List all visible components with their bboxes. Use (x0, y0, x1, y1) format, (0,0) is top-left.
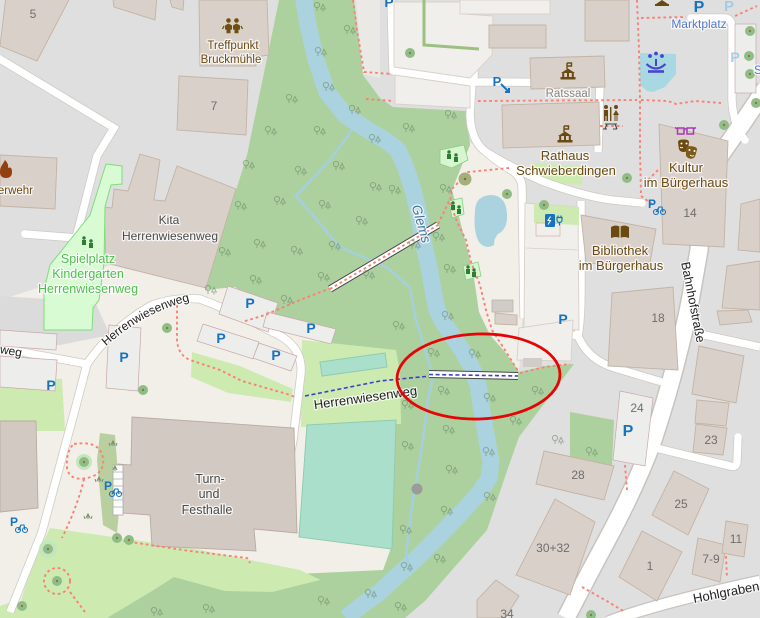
svg-text:Turn-: Turn- (195, 472, 224, 486)
svg-text:P: P (724, 0, 734, 15)
svg-text:30+32: 30+32 (536, 541, 570, 555)
svg-text:Herrenwiesenweg: Herrenwiesenweg (122, 229, 218, 243)
svg-text:Kindergarten: Kindergarten (52, 267, 124, 281)
svg-text:P: P (216, 330, 225, 346)
svg-text:P: P (648, 197, 656, 211)
svg-text:im Bürgerhaus: im Bürgerhaus (579, 258, 664, 273)
svg-text:P: P (694, 0, 705, 16)
svg-text:23: 23 (704, 433, 718, 447)
svg-text:P: P (558, 311, 567, 327)
svg-text:Schwieberdingen: Schwieberdingen (516, 163, 616, 178)
svg-text:P: P (271, 347, 280, 363)
svg-text:Ratssaal: Ratssaal (546, 88, 591, 100)
svg-text:S: S (754, 63, 760, 77)
svg-text:Kita: Kita (159, 213, 180, 227)
svg-text:Kultur: Kultur (669, 160, 704, 175)
svg-text:im Bürgerhaus: im Bürgerhaus (644, 175, 729, 190)
svg-text:1: 1 (647, 559, 654, 573)
svg-text:P: P (623, 423, 634, 440)
svg-text:18: 18 (651, 311, 665, 325)
svg-text:P: P (493, 74, 502, 89)
svg-text:25: 25 (674, 497, 688, 511)
svg-text:34: 34 (500, 607, 514, 618)
svg-text:24: 24 (630, 401, 644, 415)
svg-text:Festhalle: Festhalle (182, 503, 233, 517)
svg-text:Spielplatz: Spielplatz (61, 252, 115, 266)
svg-text:11: 11 (730, 532, 743, 546)
svg-text:Treffpunkt: Treffpunkt (207, 40, 259, 52)
svg-text:Marktplatz: Marktplatz (671, 17, 726, 31)
svg-text:P: P (245, 295, 254, 311)
svg-text:P: P (306, 320, 315, 336)
svg-text:P: P (104, 479, 112, 493)
svg-text:euerwehr: euerwehr (0, 185, 33, 197)
svg-text:14: 14 (683, 206, 697, 220)
svg-text:7: 7 (211, 99, 218, 113)
svg-text:Herrenwiesenweg: Herrenwiesenweg (38, 282, 138, 296)
svg-text:P: P (384, 0, 393, 10)
svg-text:und: und (199, 487, 220, 501)
svg-text:Bibliothek: Bibliothek (592, 243, 649, 258)
svg-text:P: P (730, 49, 739, 65)
svg-text:7-9: 7-9 (702, 552, 720, 566)
svg-text:P: P (46, 377, 55, 393)
svg-text:28: 28 (571, 468, 585, 482)
svg-text:5: 5 (30, 7, 37, 21)
svg-text:Rathaus: Rathaus (541, 148, 590, 163)
svg-text:P: P (119, 349, 128, 365)
svg-text:Bruckmühle: Bruckmühle (201, 54, 262, 66)
svg-text:P: P (10, 515, 18, 529)
